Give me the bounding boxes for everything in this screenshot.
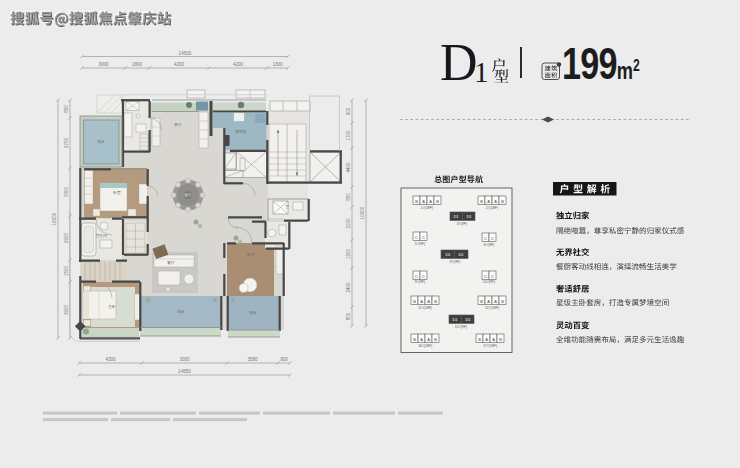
svg-text:A: A [420, 299, 423, 304]
svg-text:B: B [415, 199, 418, 204]
svg-text:B: B [480, 299, 483, 304]
svg-text:B: B [478, 337, 481, 342]
svg-text:B: B [436, 199, 439, 204]
svg-text:2#(18F): 2#(18F) [486, 206, 498, 210]
svg-text:C: C [415, 235, 418, 240]
svg-text:D1: D1 [458, 252, 464, 257]
svg-text:B: B [501, 299, 504, 304]
svg-text:D1: D1 [452, 317, 458, 322]
svg-text:D2: D2 [445, 252, 451, 257]
svg-text:14500: 14500 [179, 51, 192, 56]
svg-text:900: 900 [346, 107, 351, 115]
svg-text:C: C [491, 236, 494, 241]
svg-text:10#(9F): 10#(9F) [483, 280, 495, 284]
svg-text:D1: D1 [453, 214, 459, 219]
svg-text:3900: 3900 [64, 304, 69, 315]
svg-text:15#(9F): 15#(9F) [455, 325, 467, 329]
svg-text:C: C [422, 274, 425, 279]
svg-text:16000: 16000 [52, 212, 57, 225]
svg-text:A: A [422, 199, 425, 204]
svg-text:4200: 4200 [233, 62, 244, 67]
svg-text:A: A [494, 299, 497, 304]
svg-text:2700: 2700 [64, 137, 69, 148]
svg-text:17#(18F): 17#(18F) [483, 344, 497, 348]
svg-text:A: A [420, 337, 423, 342]
svg-text:B: B [499, 337, 502, 342]
svg-text:1800: 1800 [132, 62, 143, 67]
svg-text:A: A [494, 199, 497, 204]
svg-text:1700: 1700 [346, 130, 351, 141]
svg-text:16#(18F): 16#(18F) [418, 344, 432, 348]
svg-text:A: A [487, 299, 490, 304]
svg-text:C: C [415, 274, 418, 279]
svg-text:A: A [487, 199, 490, 204]
svg-text:D1: D1 [465, 317, 471, 322]
svg-text:14650: 14650 [178, 369, 191, 374]
svg-text:800: 800 [64, 105, 69, 113]
svg-text:B: B [413, 299, 416, 304]
svg-text:B: B [480, 199, 483, 204]
svg-text:A: A [427, 299, 430, 304]
svg-text:3000: 3000 [179, 357, 190, 362]
svg-text:9#(9F): 9#(9F) [415, 280, 425, 284]
svg-text:1500: 1500 [64, 265, 69, 276]
svg-text:900: 900 [280, 357, 288, 362]
svg-text:1300: 1300 [272, 62, 283, 67]
svg-text:2900: 2900 [64, 232, 69, 243]
svg-text:A: A [427, 337, 430, 342]
svg-text:5#(9F): 5#(9F) [415, 242, 425, 246]
svg-text:1200: 1200 [346, 248, 351, 259]
svg-text:A: A [429, 199, 432, 204]
svg-text:800: 800 [346, 312, 351, 320]
svg-text:1#(18F): 1#(18F) [421, 206, 433, 210]
svg-text:D1: D1 [466, 214, 472, 219]
svg-text:10000: 10000 [360, 206, 365, 219]
svg-text:12#(18F): 12#(18F) [485, 306, 499, 310]
svg-text:6#(9F): 6#(9F) [484, 243, 494, 247]
svg-text:3100: 3100 [346, 218, 351, 229]
svg-text:C: C [484, 274, 487, 279]
svg-text:3000: 3000 [98, 62, 109, 67]
svg-text:B: B [434, 299, 437, 304]
svg-text:800: 800 [346, 193, 351, 201]
svg-text:4300: 4300 [105, 357, 116, 362]
svg-text:3#(9F): 3#(9F) [457, 222, 467, 226]
svg-text:A: A [492, 337, 495, 342]
svg-text:3580: 3580 [247, 357, 258, 362]
svg-text:C: C [422, 235, 425, 240]
svg-text:4200: 4200 [174, 62, 185, 67]
svg-text:B: B [501, 199, 504, 204]
svg-text:C: C [491, 274, 494, 279]
svg-text:A: A [485, 337, 488, 342]
svg-text:C: C [484, 236, 487, 241]
svg-text:4400: 4400 [346, 162, 351, 173]
svg-text:2400: 2400 [346, 282, 351, 293]
svg-text:8#(9F): 8#(9F) [450, 260, 460, 264]
svg-text:3300: 3300 [64, 186, 69, 197]
svg-text:B: B [434, 337, 437, 342]
svg-text:B: B [413, 337, 416, 342]
svg-text:11#(18F): 11#(18F) [418, 306, 432, 310]
